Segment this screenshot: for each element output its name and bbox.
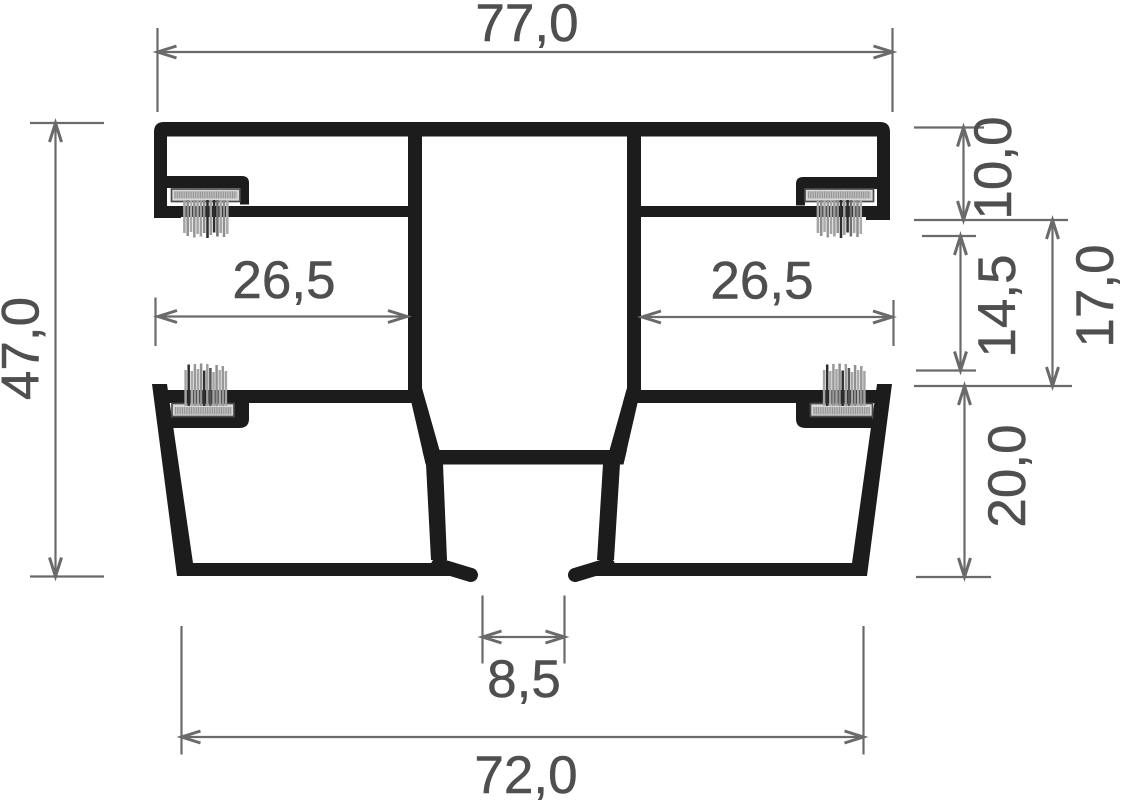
svg-text:47,0: 47,0 <box>0 297 51 400</box>
svg-text:20,0: 20,0 <box>978 424 1037 527</box>
svg-text:10,0: 10,0 <box>964 116 1023 219</box>
svg-text:26,5: 26,5 <box>232 251 335 310</box>
svg-text:17,0: 17,0 <box>1066 244 1123 347</box>
svg-text:72,0: 72,0 <box>474 746 577 800</box>
svg-text:8,5: 8,5 <box>487 650 561 709</box>
svg-text:77,0: 77,0 <box>475 0 578 53</box>
svg-text:26,5: 26,5 <box>710 252 813 311</box>
svg-text:14,5: 14,5 <box>968 254 1027 357</box>
